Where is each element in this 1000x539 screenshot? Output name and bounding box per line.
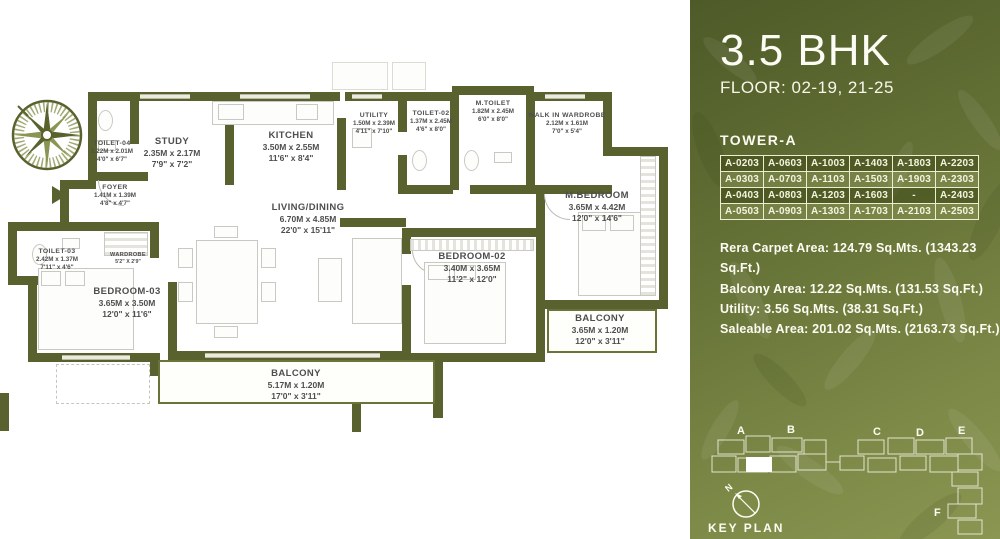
wall (536, 300, 668, 309)
room-label-foyer: FOYER 1.41M x 1.39M 4'8" x 4'7" (94, 184, 136, 208)
coffee-table (318, 258, 342, 302)
unit-cell: A-0703 (764, 172, 807, 188)
room-label-m-bedroom: M.BEDROOM 3.65M x 4.42M 12'0" x 14'6" (565, 190, 629, 223)
wc-fixture (464, 150, 479, 171)
window (545, 94, 585, 99)
service-sketch (392, 62, 426, 90)
wall (340, 218, 406, 227)
unit-cell: A-1403 (850, 156, 893, 172)
keyplan-label: KEY PLAN (708, 521, 784, 535)
unit-cell: A-1903 (893, 172, 936, 188)
window (140, 94, 190, 99)
room-label-kitchen: KITCHEN 3.50M x 2.55M 11'6" x 8'4" (263, 130, 320, 163)
window (352, 94, 382, 99)
window (62, 355, 130, 360)
unit-cell: A-1703 (850, 204, 893, 220)
room-label-balcony-bottom: BALCONY 5.17M x 1.20M 17'0" x 3'11" (268, 368, 325, 401)
tower-letter: E (958, 425, 965, 437)
key-plan: A B C D E F N KEY PLAN (690, 424, 1000, 539)
window (240, 94, 310, 99)
wall (536, 190, 545, 362)
chair (261, 248, 276, 268)
chair (261, 282, 276, 302)
dining-table (196, 240, 258, 324)
unit-cell: A-0203 (721, 156, 764, 172)
table-row: A-0403 A-0803 A-1203 A-1603 - A-2403 (721, 188, 979, 204)
unit-cell: - (893, 188, 936, 204)
unit-cell: A-2203 (936, 156, 979, 172)
room-label-toilet-03: TOILET-03 2.42M x 1.37M 7'11" x 4'6" (36, 248, 78, 272)
room-label-living-dining: LIVING/DINING 6.70M x 4.85M 22'0" x 15'1… (272, 202, 345, 235)
unit-cell: A-1803 (893, 156, 936, 172)
tower-label: TOWER-A (720, 132, 1000, 148)
utility-area: Utility: 3.56 Sq.Mts. (38.31 Sq.Ft.) (720, 299, 1000, 319)
wall (452, 86, 534, 95)
unit-cell: A-2303 (936, 172, 979, 188)
room-label-toilet-02: TOILET-02 1.37M x 2.45M 4'6" x 8'0" (410, 110, 452, 134)
wall (398, 92, 407, 132)
chair (178, 282, 193, 302)
room-label-m-toilet: M.TOILET 1.82M x 2.45M 6'0" x 8'0" (472, 100, 514, 124)
unit-cell: A-0903 (764, 204, 807, 220)
keyplan-compass-icon: N (723, 482, 759, 517)
wall (88, 92, 97, 180)
unit-cell: A-1503 (850, 172, 893, 188)
floor-plan: TOILET-04 1.22M x 2.01M 4'0" x 6'7" STUD… (0, 0, 690, 539)
unit-cell: A-0403 (721, 188, 764, 204)
unit-cell: A-1103 (807, 172, 850, 188)
wall (168, 282, 177, 360)
unit-cell: A-2103 (893, 204, 936, 220)
table-row: A-0203 A-0603 A-1003 A-1403 A-1803 A-220… (721, 156, 979, 172)
saleable-area: Saleable Area: 201.02 Sq.Mts. (2163.73 S… (720, 319, 1000, 339)
wall (402, 228, 536, 237)
room-label-study: STUDY 2.35M x 2.17M 7'9" x 7'2" (144, 136, 201, 169)
sliding-door (205, 353, 380, 358)
highlighted-unit (746, 457, 772, 472)
kitchen-sink (296, 104, 318, 120)
room-label-bedroom-03: BEDROOM-03 3.65M x 3.50M 12'0" x 11'6" (93, 286, 160, 319)
wall (398, 185, 453, 194)
wall (0, 393, 9, 431)
compass-rose-icon (8, 96, 86, 174)
room-label-toilet-04: TOILET-04 1.22M x 2.01M 4'0" x 6'7" (91, 140, 133, 164)
unit-table: A-0203 A-0603 A-1003 A-1403 A-1803 A-220… (720, 155, 979, 220)
unit-cell: A-2403 (936, 188, 979, 204)
entry-arrow-icon (52, 186, 67, 204)
unit-cell: A-1603 (850, 188, 893, 204)
info-panel: 3.5 BHK FLOOR: 02-19, 21-25 TOWER-A A-02… (690, 0, 1000, 539)
wall (659, 147, 668, 309)
rera-carpet-area: Rera Carpet Area: 124.79 Sq.Mts. (1343.2… (720, 238, 1000, 279)
wc-fixture (98, 110, 113, 131)
table-row: A-0303 A-0703 A-1103 A-1503 A-1903 A-230… (721, 172, 979, 188)
tower-letter: F (934, 507, 941, 519)
unit-cell: A-2503 (936, 204, 979, 220)
unit-cell: A-1203 (807, 188, 850, 204)
room-label-wardrobe: WARDROBE 5'2" X 2'9" (110, 252, 146, 265)
floor-range: FLOOR: 02-19, 21-25 (720, 78, 1000, 98)
tower-letter: D (916, 427, 924, 439)
room-label-balcony-right: BALCONY 3.65M x 1.20M 12'0" x 3'11" (572, 313, 629, 346)
wall (8, 222, 108, 231)
chair (214, 226, 238, 238)
room-label-bedroom-02: BEDROOM-02 3.40M x 3.65M 11'2" x 12'0" (438, 251, 505, 284)
wardrobe-strip (640, 156, 656, 296)
tower-letter: A (737, 425, 745, 437)
ledge (56, 364, 150, 404)
tower-letter: C (873, 426, 881, 438)
unit-cell: A-1003 (807, 156, 850, 172)
wall (150, 222, 159, 258)
area-stats: Rera Carpet Area: 124.79 Sq.Mts. (1343.2… (720, 238, 1000, 339)
unit-cell: A-1303 (807, 204, 850, 220)
service-sketch (332, 62, 388, 90)
washbasin (494, 152, 512, 163)
wall (8, 222, 17, 284)
wall (526, 92, 535, 190)
wall (130, 92, 139, 144)
room-label-walk-in-wardrobe: WALK IN WARDROBE 2.12M x 1.61M 7'0" x 5'… (527, 112, 607, 136)
balcony-area: Balcony Area: 12.22 Sq.Mts. (131.53 Sq.F… (720, 279, 1000, 299)
plan-title: 3.5 BHK (720, 26, 1000, 76)
unit-cell: A-0303 (721, 172, 764, 188)
svg-text:N: N (723, 482, 734, 494)
pillow (41, 271, 61, 286)
pillow (65, 271, 85, 286)
unit-cell: A-0603 (764, 156, 807, 172)
room-label-utility: UTILITY 1.50M x 2.39M 4'11" x 7'10" (353, 112, 395, 136)
table-row: A-0503 A-0903 A-1303 A-1703 A-2103 A-250… (721, 204, 979, 220)
wardrobe-strip (410, 239, 534, 251)
wall (28, 276, 37, 362)
wall (450, 92, 459, 190)
sofa (352, 238, 402, 324)
tower-letter: B (787, 424, 795, 436)
wall (352, 404, 361, 432)
wc-fixture (412, 150, 427, 171)
chair (178, 248, 193, 268)
unit-cell: A-0503 (721, 204, 764, 220)
wall (337, 118, 346, 190)
chair (214, 326, 238, 338)
stove (218, 104, 244, 120)
unit-cell: A-0803 (764, 188, 807, 204)
